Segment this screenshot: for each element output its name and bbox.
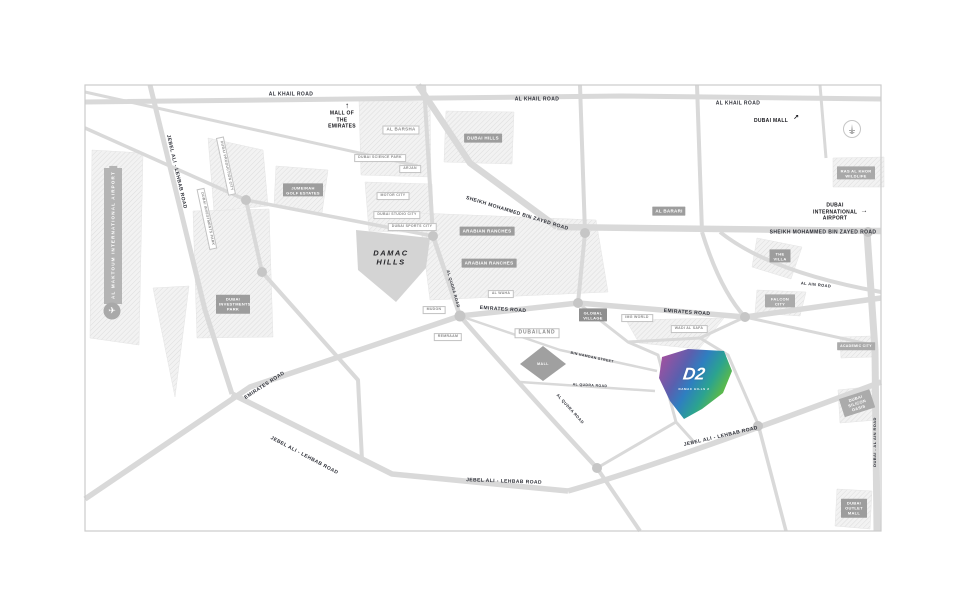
landmark-al-maktoum-airport: AL MAKTOUM INTERNATIONAL AIRPORT	[109, 166, 117, 304]
road-label-smbz: SHEIKH MOHAMMED BIN ZAYED ROAD	[770, 231, 877, 236]
road-label-al-khail: AL KHAIL ROAD	[269, 93, 313, 98]
community-label-sports-city: DUBAI SPORTS CITY	[388, 223, 437, 231]
burj-spire-glyph	[848, 124, 856, 134]
area-label-jumeirah-golf-estates: JUMEIRAH GOLF ESTATES	[283, 183, 323, 196]
community-label-wadi-al-safa: WADI AL SAFA	[671, 325, 708, 333]
area-label-al-barari: AL BARARI	[652, 207, 685, 216]
area-label-dubai-investments-park: DUBAI INVESTMENTS PARK	[216, 295, 250, 314]
up-arrow-icon: ↑	[345, 102, 349, 110]
area-label-global-village: GLOBAL VILLAGE	[579, 308, 607, 321]
community-label-arjan: ARJAN	[399, 165, 421, 173]
d2-damac-hills-2-area	[659, 349, 732, 419]
community-label-motor-city: MOTOR CITY	[377, 192, 410, 200]
area-label-arabian-ranches: ARABIAN RANCHES	[460, 227, 515, 236]
area-label-the-villa: THE VILLA	[770, 249, 791, 262]
community-label-mudon: MUDON	[423, 306, 446, 314]
mall-label: MALL	[537, 362, 549, 366]
area-label-arabian-ranches: ARABIAN RANCHES	[462, 259, 517, 268]
d2-subtitle: DAMAC HILLS 2	[679, 387, 710, 391]
dubai-location-map: AL KHAIL ROAD AL KHAIL ROAD AL KHAIL ROA…	[0, 0, 966, 600]
airplane-icon: ✈	[104, 303, 121, 320]
community-label-al-waha: AL WAHA	[488, 290, 514, 298]
area-label-dubai-hills: DUBAI HILLS	[464, 134, 502, 143]
road-label-dubai-al-ain: DUBAI - AL AIN ROAD	[873, 417, 877, 467]
road-label-al-khail: AL KHAIL ROAD	[515, 98, 559, 103]
community-label-remraam: REMRAAM	[434, 333, 462, 341]
map-canvas	[0, 0, 966, 600]
area-label-falcon-city: FALCON CITY	[765, 294, 795, 307]
area-label-academic-city: ACADEMIC CITY	[837, 342, 875, 350]
area-label-dubai-outlet-mall: DUBAI OUTLET MALL	[841, 499, 867, 518]
road-label-al-khail: AL KHAIL ROAD	[716, 102, 760, 107]
community-label-al-barsha: AL BARSHA	[382, 126, 419, 135]
community-label-img-world: IMG WORLD	[621, 314, 653, 322]
area-label-ras-al-khor: RAS AL KHOR WILDLIFE	[837, 166, 875, 179]
up-right-arrow-icon: ↗	[793, 115, 799, 122]
landmark-damac-hills: DAMAC HILLS	[372, 249, 410, 268]
community-label-dubailand: DUBAILAND	[515, 328, 560, 338]
landmark-dubai-international-airport: DUBAI INTERNATIONAL AIRPORT	[813, 202, 857, 222]
community-label-studio-city: DUBAI STUDIO CITY	[373, 211, 420, 219]
landmark-mall-of-the-emirates: MALL OF THE EMIRATES	[324, 110, 360, 130]
landmark-dubai-mall: DUBAI MALL	[754, 118, 788, 125]
d2-logo: D2	[682, 366, 706, 383]
burj-khalifa-icon	[843, 120, 861, 138]
community-label-science-park: DUBAI SCIENCE PARK	[354, 154, 406, 162]
right-arrow-icon: →	[861, 208, 868, 215]
